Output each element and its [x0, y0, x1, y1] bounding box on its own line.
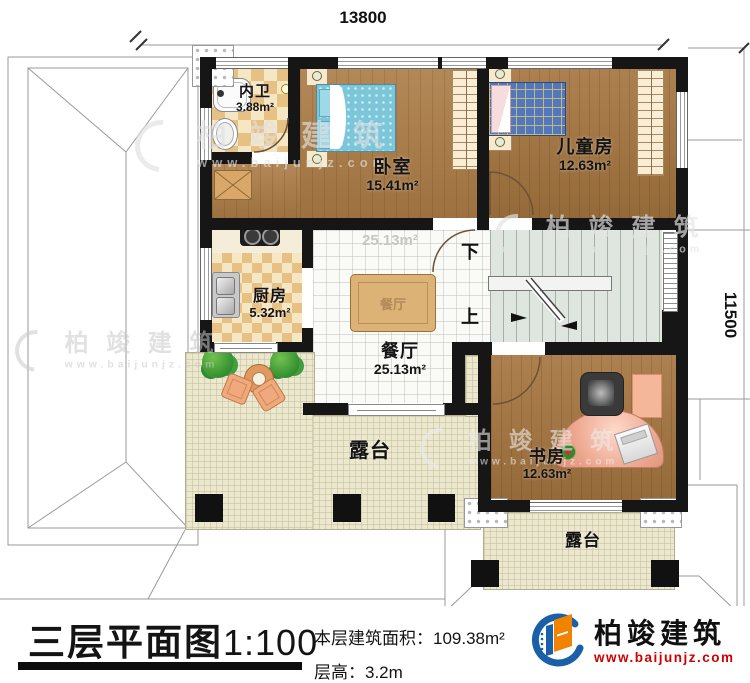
stairs-down-label: 下: [461, 238, 479, 264]
brand-name: 柏竣建筑: [594, 619, 735, 650]
room-label-terrace-small: 露台: [548, 532, 618, 551]
room-label-kitchen: 厨房 5.32m²: [226, 288, 314, 320]
title-block: 三层平面图 1:100 本层建筑面积：109.38m² 层高：3.2m 柏竣建筑: [0, 606, 750, 683]
brand-logo: 柏竣建筑 www.baijunjz.com: [528, 610, 735, 674]
area-label: 本层建筑面积：: [314, 629, 433, 648]
room-label-study: 书房 12.63m²: [505, 448, 589, 481]
area-value: 109.38m²: [433, 629, 505, 648]
floor-height-label: 层高：: [314, 663, 365, 682]
plan-scale: 1:100: [223, 622, 318, 664]
brand-logo-text: 柏竣建筑 www.baijunjz.com: [594, 619, 735, 665]
room-label-dining: 餐厅 25.13m²: [352, 342, 448, 377]
room-label-bedroom: 卧室 15.41m²: [335, 158, 450, 193]
plan-title-text: 三层平面图: [28, 612, 223, 666]
title-underline: [18, 662, 302, 670]
plan-info: 本层建筑面积：109.38m² 层高：3.2m: [314, 624, 505, 683]
brand-logo-icon: [528, 610, 586, 674]
floor-height-value: 3.2m: [365, 663, 403, 682]
room-label-kids: 儿童房 12.63m²: [525, 138, 645, 173]
brand-url: www.baijunjz.com: [594, 650, 735, 665]
stairs-up-label: 上: [461, 303, 479, 329]
dimension-right: 11500: [720, 275, 740, 355]
plan-title: 三层平面图 1:100: [28, 612, 318, 666]
room-label-terrace-main: 露台: [330, 440, 410, 462]
dimension-top: 13800: [318, 8, 408, 28]
floorplan-canvas: 13800 11500: [0, 0, 750, 683]
room-label-bathroom: 内卫 3.88m²: [220, 84, 290, 114]
